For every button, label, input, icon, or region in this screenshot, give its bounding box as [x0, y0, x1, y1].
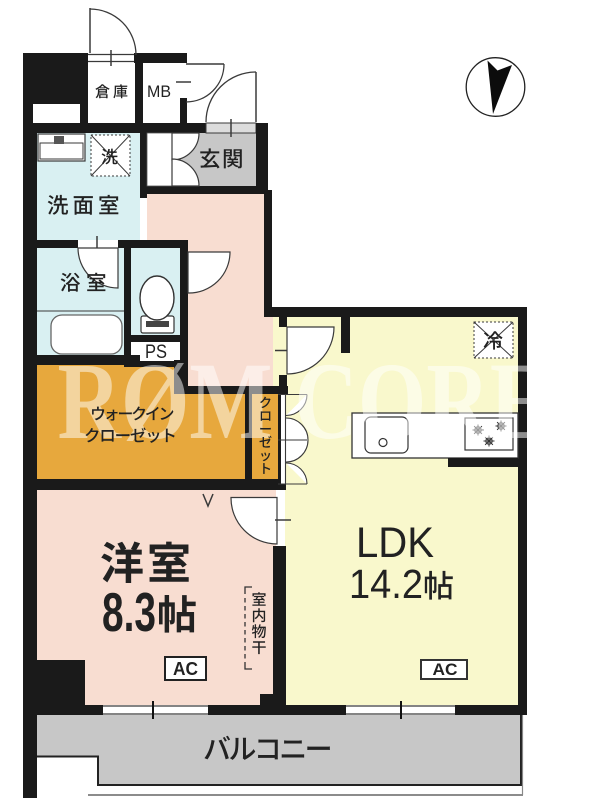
svg-text:LDK: LDK	[356, 519, 434, 567]
svg-text:MB: MB	[147, 82, 171, 101]
svg-text:AC: AC	[433, 660, 458, 679]
svg-text:RØM CORE: RØM CORE	[58, 340, 549, 462]
svg-text:AC: AC	[173, 659, 198, 679]
svg-text:14.2: 14.2	[349, 561, 423, 607]
svg-text:8.3: 8.3	[102, 581, 156, 643]
svg-text:PS: PS	[145, 342, 167, 363]
